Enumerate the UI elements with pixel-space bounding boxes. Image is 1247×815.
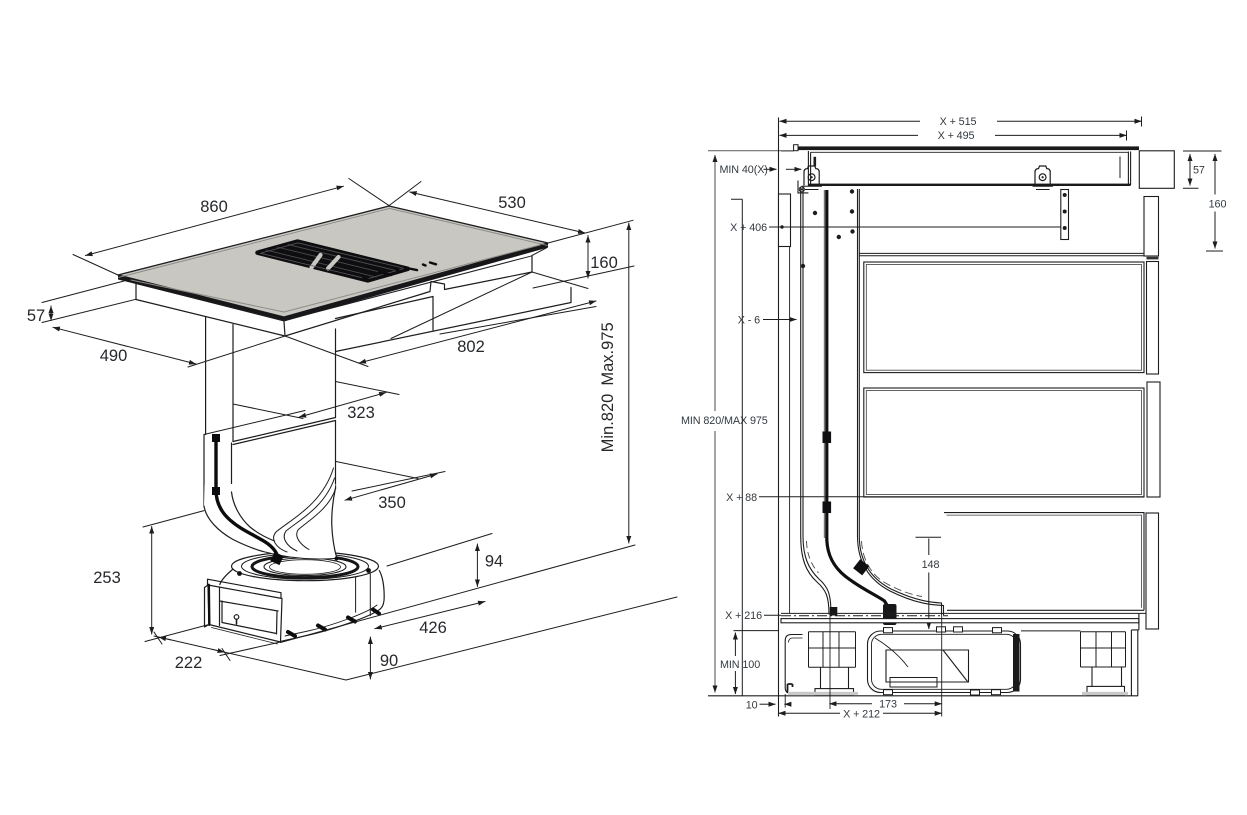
svg-text:X + 495: X + 495 (938, 130, 975, 142)
svg-text:90: 90 (380, 652, 398, 670)
svg-text:MIN 40(X): MIN 40(X) (720, 164, 768, 176)
svg-text:222: 222 (175, 654, 203, 672)
svg-text:323: 323 (347, 404, 375, 422)
svg-text:MIN 100: MIN 100 (720, 659, 760, 671)
svg-text:426: 426 (419, 619, 447, 637)
svg-text:X + 212: X + 212 (843, 708, 880, 720)
svg-text:160: 160 (590, 254, 618, 272)
svg-text:Max.975: Max.975 (599, 322, 617, 385)
svg-text:10: 10 (746, 699, 758, 711)
svg-text:490: 490 (100, 347, 128, 365)
svg-text:57: 57 (27, 307, 45, 325)
svg-text:X + 406: X + 406 (730, 222, 767, 234)
svg-text:X - 6: X - 6 (738, 314, 760, 326)
svg-text:57: 57 (1193, 164, 1205, 176)
svg-text:148: 148 (922, 559, 940, 571)
svg-text:MIN 820/MAX 975: MIN 820/MAX 975 (681, 415, 768, 427)
svg-text:350: 350 (378, 494, 406, 512)
svg-text:173: 173 (879, 699, 897, 711)
svg-text:X + 216: X + 216 (725, 610, 762, 622)
svg-text:Min.820: Min.820 (599, 394, 617, 453)
svg-text:X + 88: X + 88 (726, 492, 757, 504)
svg-text:160: 160 (1209, 198, 1227, 210)
svg-text:X + 515: X + 515 (940, 116, 977, 128)
svg-text:860: 860 (200, 198, 228, 216)
svg-text:802: 802 (457, 338, 485, 356)
svg-text:530: 530 (498, 194, 526, 212)
svg-text:253: 253 (93, 569, 121, 587)
svg-text:94: 94 (485, 553, 503, 571)
